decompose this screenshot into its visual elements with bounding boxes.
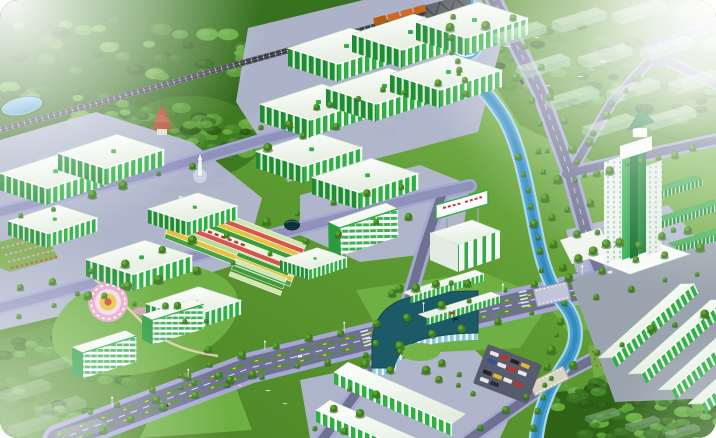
industrial-park-rendering: [0, 0, 716, 438]
